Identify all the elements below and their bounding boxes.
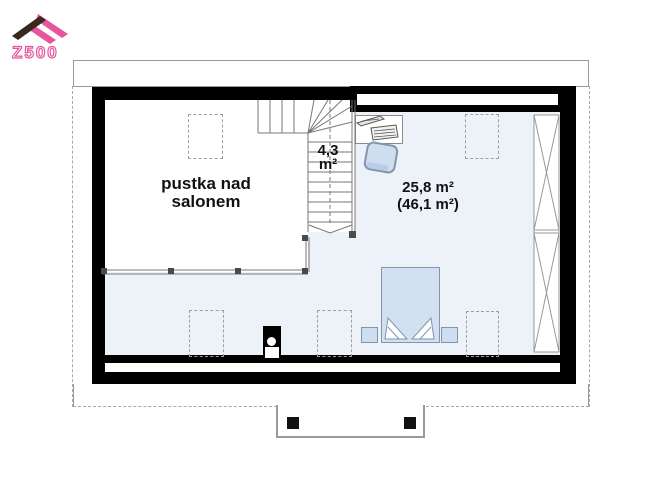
z500-logo: Z500 (10, 8, 82, 60)
bedroom-area-total: (46,1 m²) (378, 196, 478, 213)
void-label-line2: salonem (120, 193, 292, 211)
terrace-roof-outline (276, 405, 425, 438)
skylight (465, 114, 499, 159)
skylight (317, 310, 352, 357)
skylight (189, 310, 224, 357)
wall-right (560, 86, 576, 384)
stairs-area-label: 4,3 m² (303, 144, 353, 172)
logo-text: Z500 (12, 43, 59, 60)
desk (355, 115, 403, 144)
roof-eave-top (73, 60, 589, 87)
roof-edge-right (589, 86, 590, 407)
chimney-vent (265, 335, 279, 347)
nightstand (361, 327, 378, 343)
nightstand (441, 327, 458, 343)
chimney (263, 326, 281, 360)
wall-left (92, 87, 105, 384)
window-right-wall (534, 115, 560, 352)
wall-bottom-outer (92, 372, 576, 384)
bed (381, 267, 440, 343)
skylight (188, 114, 223, 159)
chimney-vent-hole (267, 337, 276, 346)
bedroom-area-label: 25,8 m² (46,1 m²) (378, 179, 478, 213)
chair (363, 140, 400, 174)
void-label-line1: pustka nad (120, 175, 292, 193)
skylight (466, 311, 499, 357)
chimney-flue (265, 328, 279, 335)
roof-eave-bottom-edge-left (73, 406, 277, 407)
chair-back (366, 162, 389, 172)
terrace-post (287, 417, 299, 429)
void-label: pustka nad salonem (120, 175, 292, 211)
floor-plan-page: Z500 pustka nad salonem 4,3 m² 25,8 m² (… (0, 0, 655, 477)
bedroom-area-value: 25,8 m² (378, 179, 478, 196)
window-top-wall (357, 94, 558, 105)
terrace-post (404, 417, 416, 429)
roof-eave-bottom (73, 384, 589, 406)
roof-eave-bottom-edge-right (421, 406, 589, 407)
stairs-area-unit: m² (303, 158, 353, 172)
roof-edge-left (72, 86, 73, 407)
